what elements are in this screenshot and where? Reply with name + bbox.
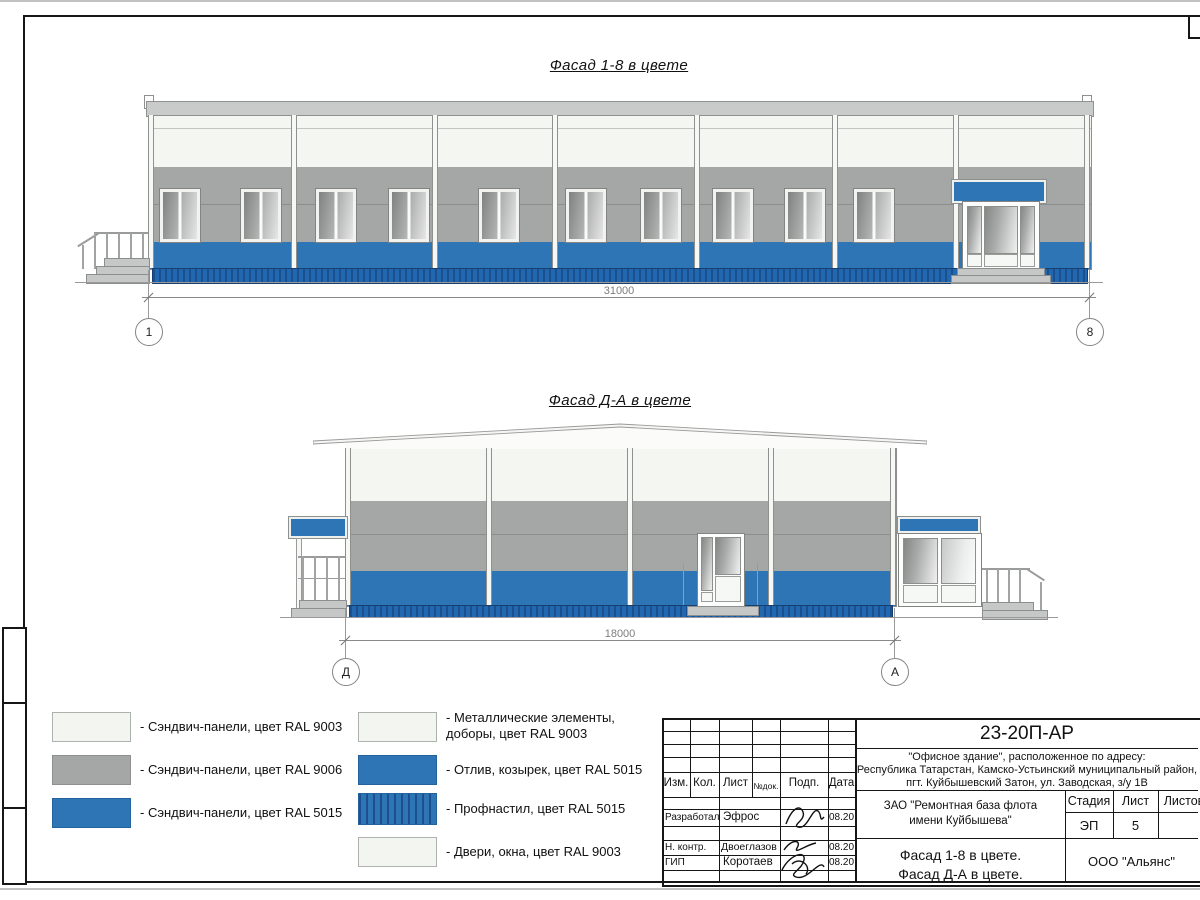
tb-col-izm: Изм. [662, 777, 690, 789]
tb-col-ndok: №док. [752, 781, 780, 791]
mullion [832, 115, 838, 268]
legend-label: - Двери, окна, цвет RAL 9003 [446, 844, 686, 860]
tb-col-kol: Кол. [690, 777, 719, 789]
margin-box [2, 807, 27, 885]
dimension-line [339, 640, 901, 641]
axis-bubble-1: 1 [135, 318, 163, 346]
facade-d-a-title: Фасад Д-А в цвете [470, 392, 770, 410]
legend-swatch-profnastil [358, 793, 437, 825]
dimension-value: 18000 [570, 628, 670, 640]
sandwich-band-white [346, 449, 896, 501]
corner-trim [148, 115, 154, 268]
legend-swatch-metal [358, 712, 437, 742]
mullion [694, 115, 700, 268]
window [315, 188, 357, 243]
door-glass [984, 206, 1018, 254]
gable-roof [313, 420, 927, 450]
margin-box [2, 627, 27, 706]
window [240, 188, 282, 243]
door-panel [715, 576, 741, 602]
railing-post [338, 557, 340, 600]
sheet-edge-bottom [0, 888, 1200, 890]
window [640, 188, 682, 243]
dimension-value: 31000 [569, 285, 669, 297]
mullion [552, 115, 558, 268]
facade-d-a-wall [345, 448, 897, 607]
drawing-sheet: Фасад 1-8 в цвете [0, 0, 1200, 900]
company-name: ООО "Альянс" [1065, 854, 1198, 869]
extension-line [148, 270, 149, 318]
tb-grid-line [856, 790, 1198, 791]
legend-label: - Металлические элементы, доборы, цвет R… [446, 710, 676, 742]
doc-number: 23-20П-АР [856, 723, 1198, 745]
vestibule-panel [941, 585, 976, 603]
tb-grid-line [856, 748, 1198, 749]
door-panel [1020, 254, 1035, 267]
tb-col-data: Дата [828, 777, 855, 789]
window [784, 188, 826, 243]
door-unit [697, 533, 745, 607]
axis-bubble-d: Д [332, 658, 360, 686]
tb-grid-line [856, 838, 1198, 839]
corner-trim [890, 448, 896, 605]
tb-grid-line [662, 826, 855, 827]
facade-1-8-wall [148, 115, 1092, 270]
railing-post [326, 557, 328, 600]
axis-bubble-8: 8 [1076, 318, 1104, 346]
railing-post [986, 569, 988, 605]
panel-joint [346, 534, 896, 535]
mullion [486, 448, 492, 605]
tb-grid-line [662, 809, 855, 810]
entrance-canopy [952, 180, 1046, 203]
railing-post [997, 569, 999, 605]
tb-col-podp: Подп. [780, 777, 828, 789]
stair-step [982, 610, 1048, 620]
vestibule-fascia [898, 517, 980, 533]
porch-canopy [289, 517, 347, 538]
sheets-label: Листов [1158, 794, 1200, 808]
railing-post [82, 245, 84, 269]
window [388, 188, 430, 243]
door-glass [715, 537, 741, 575]
window [159, 188, 201, 243]
project-address: "Офисное здание", расположенное по адрес… [856, 751, 1198, 790]
vestibule-window [903, 538, 938, 584]
tb-grid-line [662, 757, 855, 758]
vestibule-panel [903, 585, 938, 603]
tb-col-list: Лист [719, 777, 752, 789]
sheet-value: 5 [1113, 818, 1158, 833]
extension-line [894, 608, 895, 658]
dimension-line [142, 297, 1096, 298]
extension-line [345, 608, 346, 658]
tb-name: Эфрос [723, 811, 779, 823]
facade-1-8-title: Фасад 1-8 в цвете [469, 57, 769, 75]
door-panel [967, 254, 982, 267]
handrail-stanchion [757, 563, 758, 605]
door-panel [984, 254, 1018, 267]
entrance-door-unit [962, 201, 1040, 270]
tb-date: 08.20 [828, 857, 855, 868]
tb-date: 08.20 [828, 812, 855, 823]
sheet-label: Лист [1113, 794, 1158, 808]
window [712, 188, 754, 243]
stair-railing [94, 232, 148, 234]
door-step [687, 606, 759, 616]
tb-grid-line [1065, 812, 1198, 813]
vestibule [898, 533, 982, 607]
railing-post [1040, 582, 1042, 612]
railing-post [302, 557, 304, 600]
client-name: ЗАО "Ремонтная база флота имени Куйбышев… [856, 799, 1065, 829]
railing-post [1008, 569, 1010, 605]
legend-swatch-ral9003 [52, 712, 131, 742]
door-panel [701, 592, 713, 602]
tb-grid-line [662, 797, 855, 798]
sidelight-glass [1020, 206, 1035, 254]
ground-line [75, 282, 1103, 283]
legend-swatch-ral5015 [52, 798, 131, 828]
tb-grid-line [662, 772, 855, 773]
ground-line [280, 617, 1058, 618]
stair-railing [982, 568, 1030, 570]
mullion [432, 115, 438, 268]
tb-grid-line [662, 731, 855, 732]
sheet-edge-top [0, 0, 1200, 2]
stage-label: Стадия [1065, 794, 1113, 808]
corner-stamp-box [1188, 15, 1200, 39]
corner-trim [1084, 115, 1090, 268]
legend-swatch-otliv [358, 755, 437, 785]
railing-post [94, 233, 96, 269]
railing-post [314, 557, 316, 600]
tb-name: Двоеглазов [721, 841, 781, 853]
signature [782, 800, 826, 830]
extension-line [1089, 270, 1090, 318]
legend-swatch-doors [358, 837, 437, 867]
sandwich-band-gray [346, 501, 896, 571]
handrail-stanchion [683, 563, 684, 605]
railing-post [1019, 569, 1021, 605]
window [478, 188, 520, 243]
mullion [627, 448, 633, 605]
vestibule-window [941, 538, 976, 584]
mullion [768, 448, 774, 605]
window [565, 188, 607, 243]
tb-role: Н. контр. [665, 842, 720, 853]
signature [778, 836, 828, 882]
legend-swatch-ral9006 [52, 755, 131, 785]
stage-value: ЭП [1065, 818, 1113, 833]
window [853, 188, 895, 243]
tb-date: 08.20 [828, 842, 855, 853]
sandwich-band-blue [346, 571, 896, 606]
axis-bubble-a: А [881, 658, 909, 686]
tb-grid-line [662, 744, 855, 745]
legend-label: - Отлив, козырек, цвет RAL 5015 [446, 762, 686, 778]
mullion [291, 115, 297, 268]
margin-box [2, 702, 27, 811]
tb-role: Разработал [665, 812, 720, 823]
tb-role: ГИП [665, 857, 720, 868]
sidelight-glass [701, 537, 713, 591]
legend-label: - Профнастил, цвет RAL 5015 [446, 801, 686, 817]
sidelight-glass [967, 206, 982, 254]
sheet-title: Фасад 1-8 в цвете. Фасад Д-А в цвете. [856, 846, 1065, 884]
tb-name: Коротаев [723, 856, 779, 868]
